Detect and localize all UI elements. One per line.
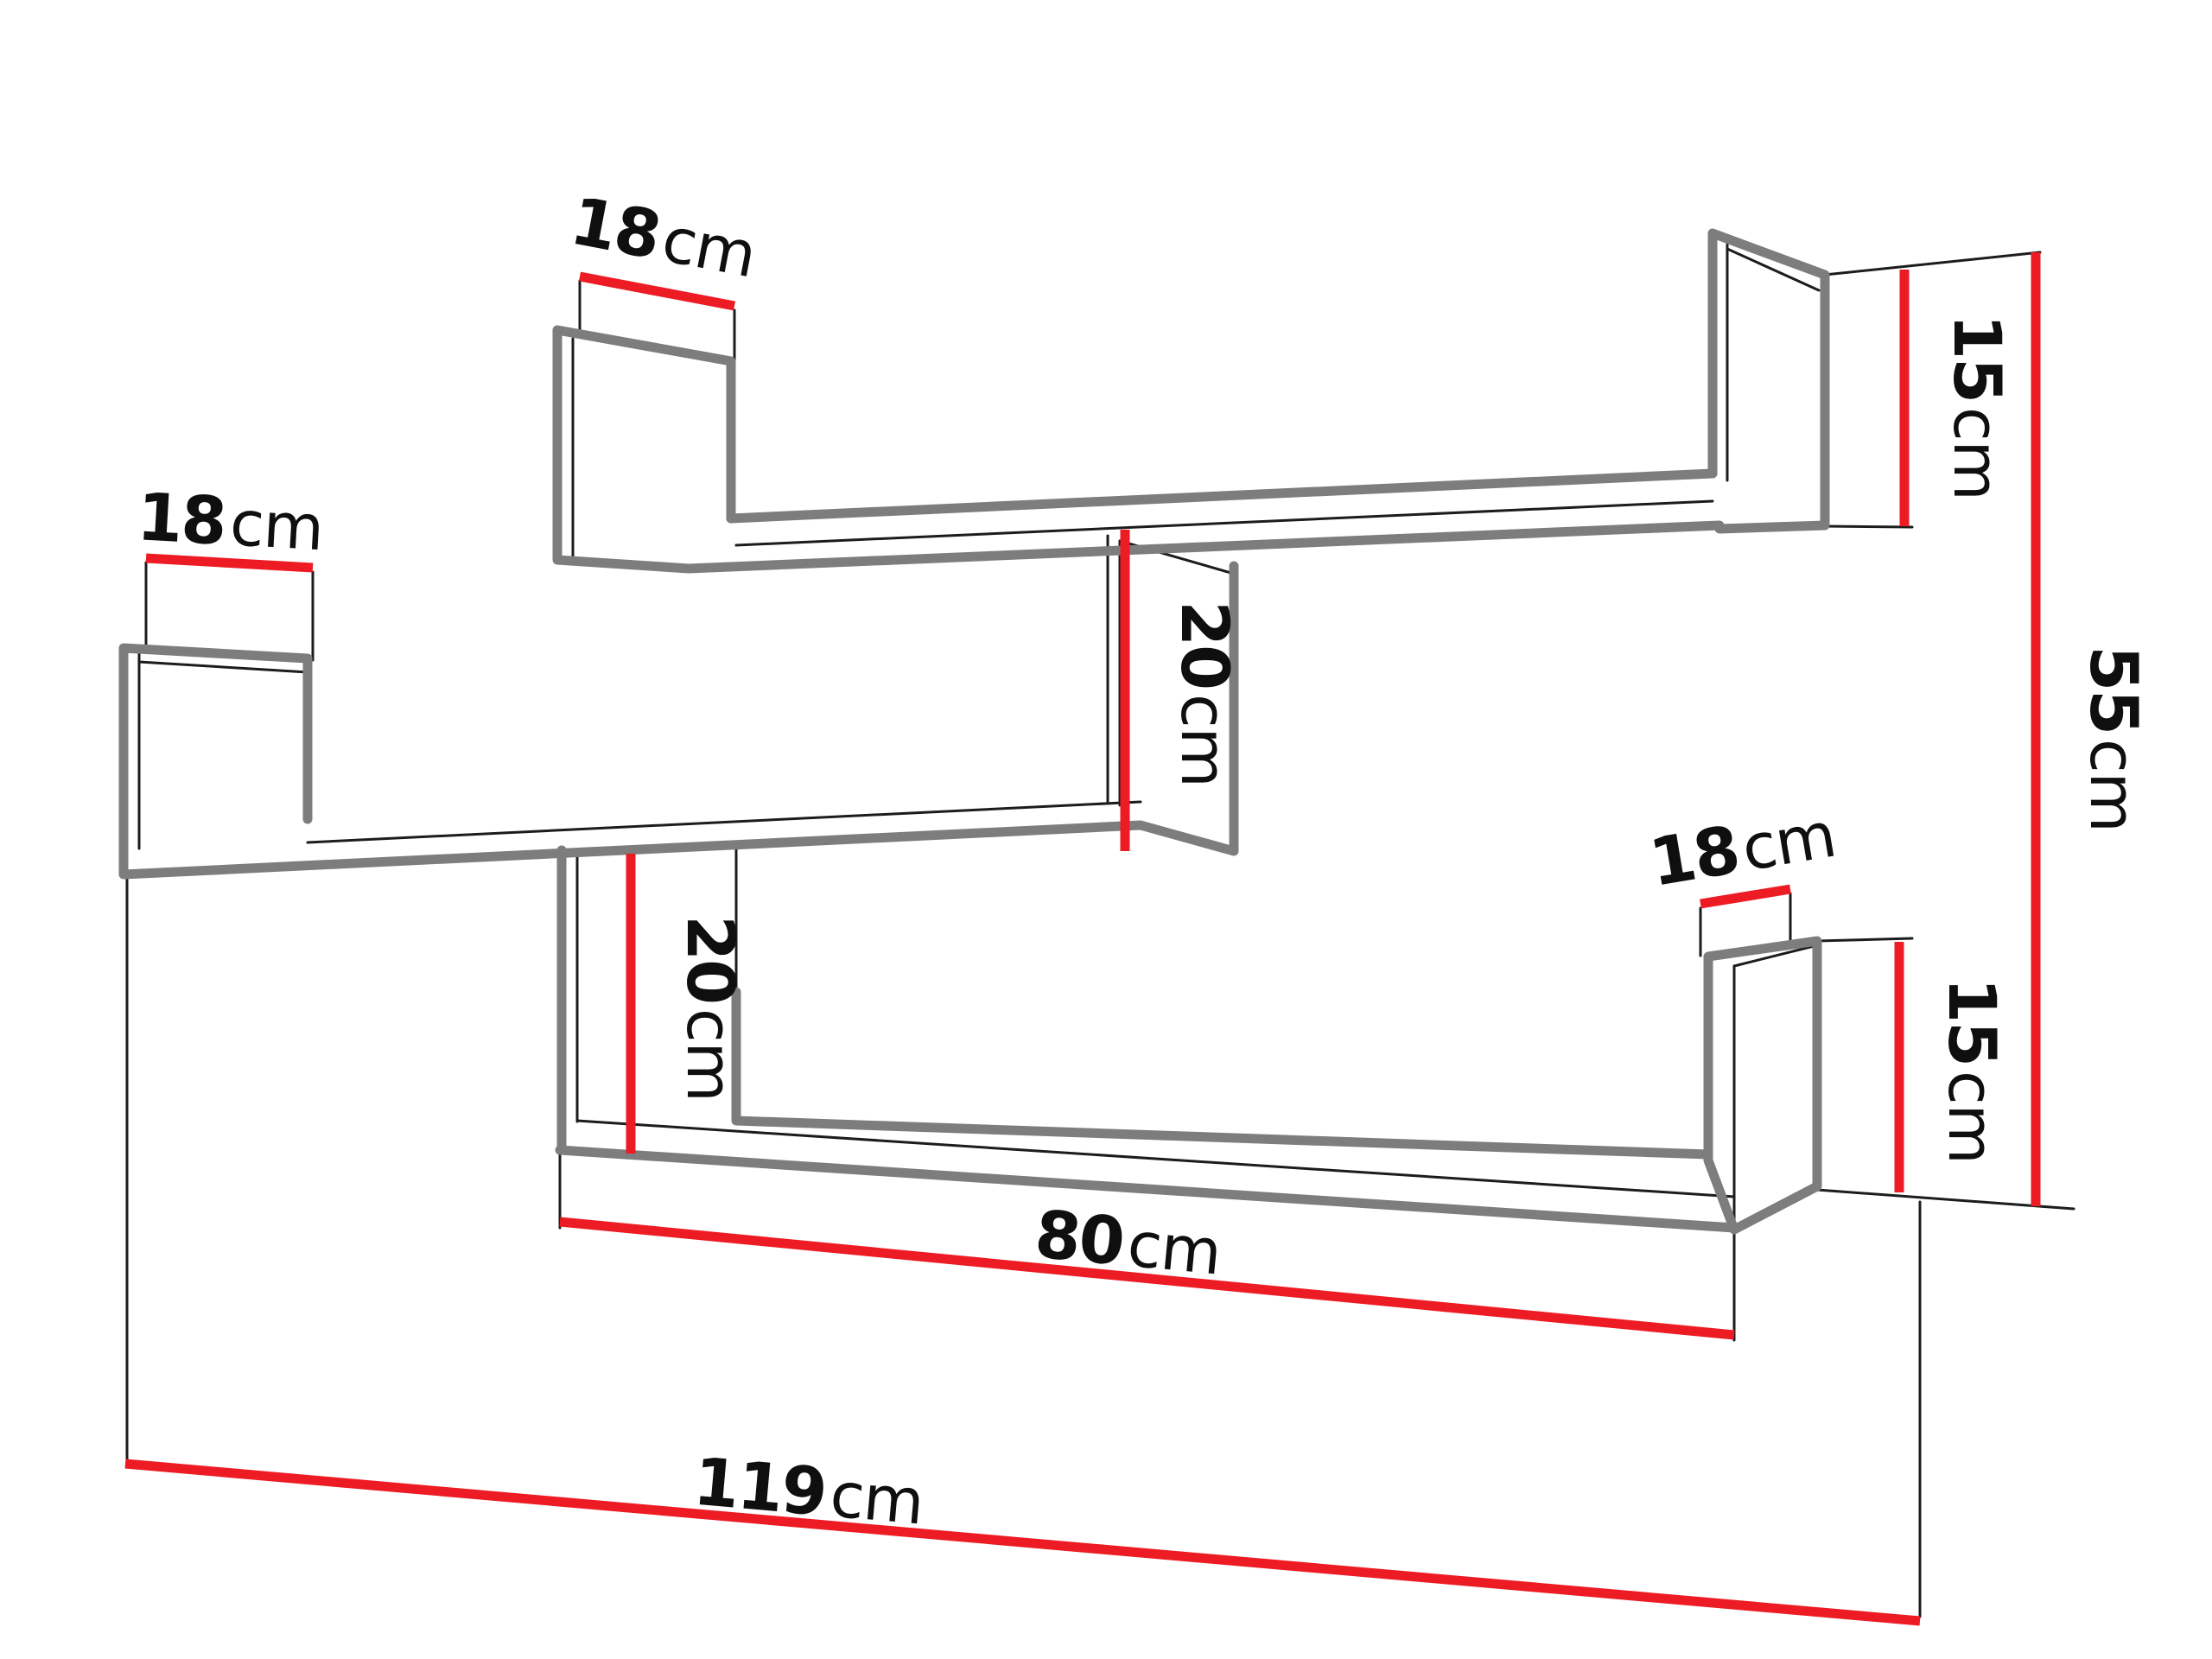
label-18-left-unit: cm — [228, 486, 325, 564]
top-shelf-board-top-edge — [731, 474, 1713, 518]
label-18-right-value: 18 — [1644, 810, 1744, 901]
ext-15-bottom-top — [1817, 938, 1912, 941]
label-18-right-unit: cm — [1737, 798, 1840, 886]
label-119: 119 cm — [690, 1443, 926, 1540]
diagram-stage: 18 cm 18 cm 18 cm 15 cm 15 cm 20 cm 20 c… — [0, 0, 2212, 1659]
label-20-lower: 20 cm — [672, 915, 749, 1102]
top-shelf-right-panel — [1713, 233, 1825, 529]
label-18-left: 18 cm — [135, 478, 325, 565]
thin-edges — [127, 244, 2074, 1617]
label-15-bottom: 15 cm — [1934, 977, 2011, 1164]
label-55-unit: cm — [2076, 739, 2149, 832]
label-55-value: 55 — [2075, 645, 2152, 734]
label-80-value: 80 — [1032, 1195, 1127, 1280]
label-55: 55 cm — [2075, 645, 2152, 832]
dim-line-119 — [125, 1464, 1920, 1621]
label-20-lower-value: 20 — [672, 915, 749, 1003]
ext-top-to-55 — [1825, 252, 2040, 275]
label-20-upper-unit: cm — [1167, 694, 1240, 787]
shelf-outlines — [124, 233, 1825, 1230]
label-18-right: 18 cm — [1644, 795, 1840, 901]
label-20-lower-unit: cm — [673, 1008, 746, 1102]
ext-15-top-bottom — [1825, 526, 1912, 527]
label-80-unit: cm — [1124, 1208, 1224, 1289]
label-20-upper: 20 cm — [1166, 601, 1243, 787]
label-15-top-value: 15 — [1939, 314, 2016, 402]
label-119-value: 119 — [690, 1443, 829, 1531]
bottom-right-panel — [1708, 941, 1817, 1230]
label-15-bottom-unit: cm — [1935, 1071, 2007, 1164]
label-18-left-value: 18 — [135, 478, 227, 560]
middle-shelf-front-top-edge — [308, 802, 1141, 842]
label-15-top: 15 cm — [1939, 314, 2016, 500]
top-shelf-left-panel-and-board-bottom — [557, 330, 1719, 569]
shelf-dimension-diagram: 18 cm 18 cm 18 cm 15 cm 15 cm 20 cm 20 c… — [0, 0, 2212, 1659]
middle-left-panel-inner-top-edge — [139, 662, 308, 672]
label-15-bottom-value: 15 — [1934, 977, 2011, 1065]
middle-shelf-left-panel-and-board — [124, 566, 1234, 874]
lower-connector-right-and-bottom-shelf-top — [736, 992, 1708, 1154]
label-18-top-value: 18 — [565, 182, 666, 274]
label-119-unit: cm — [828, 1459, 927, 1539]
label-15-top-unit: cm — [1940, 407, 2012, 500]
label-20-upper-value: 20 — [1166, 601, 1243, 689]
label-80: 80 cm — [1032, 1195, 1224, 1289]
dimension-lines — [125, 252, 2036, 1621]
label-18-top-unit: cm — [657, 203, 762, 292]
